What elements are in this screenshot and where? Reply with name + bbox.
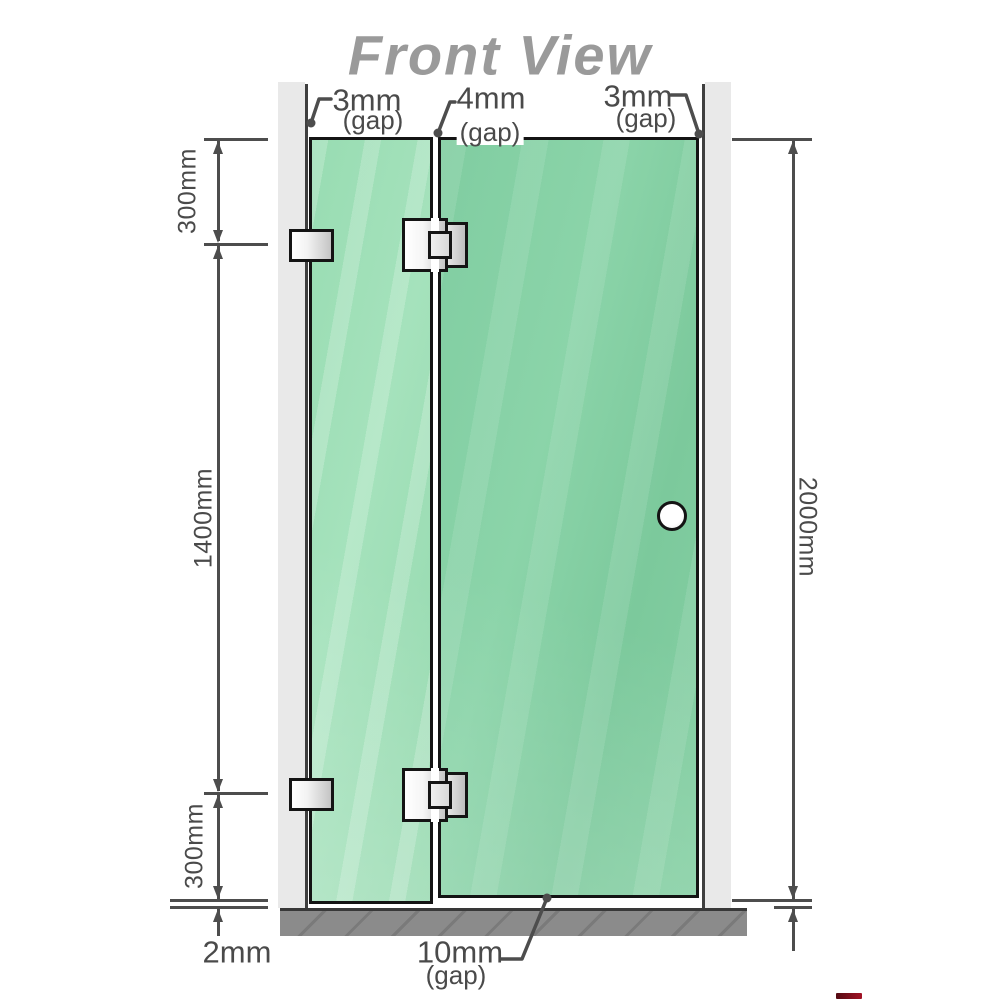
dim-label-300-top: 300mm [176, 148, 201, 234]
dim-label-2000: 2000mm [795, 477, 820, 577]
dim-label-2mm: 2mm [203, 937, 272, 968]
gap-label-bottom-sub: (gap) [426, 962, 487, 988]
gap-label-top-middle-sub: (gap) [457, 119, 524, 145]
red-logo-fragment [836, 993, 862, 999]
gap-label-top-right-sub: (gap) [616, 105, 677, 131]
gap-label-top-middle-value: 4mm [457, 83, 526, 114]
dim-label-1400: 1400mm [192, 468, 217, 568]
front-view-diagram: Front View [0, 0, 1000, 1000]
gap-label-top-left-sub: (gap) [343, 107, 404, 133]
leader-lines [0, 0, 1000, 1000]
dim-label-300-bottom: 300mm [183, 803, 208, 889]
